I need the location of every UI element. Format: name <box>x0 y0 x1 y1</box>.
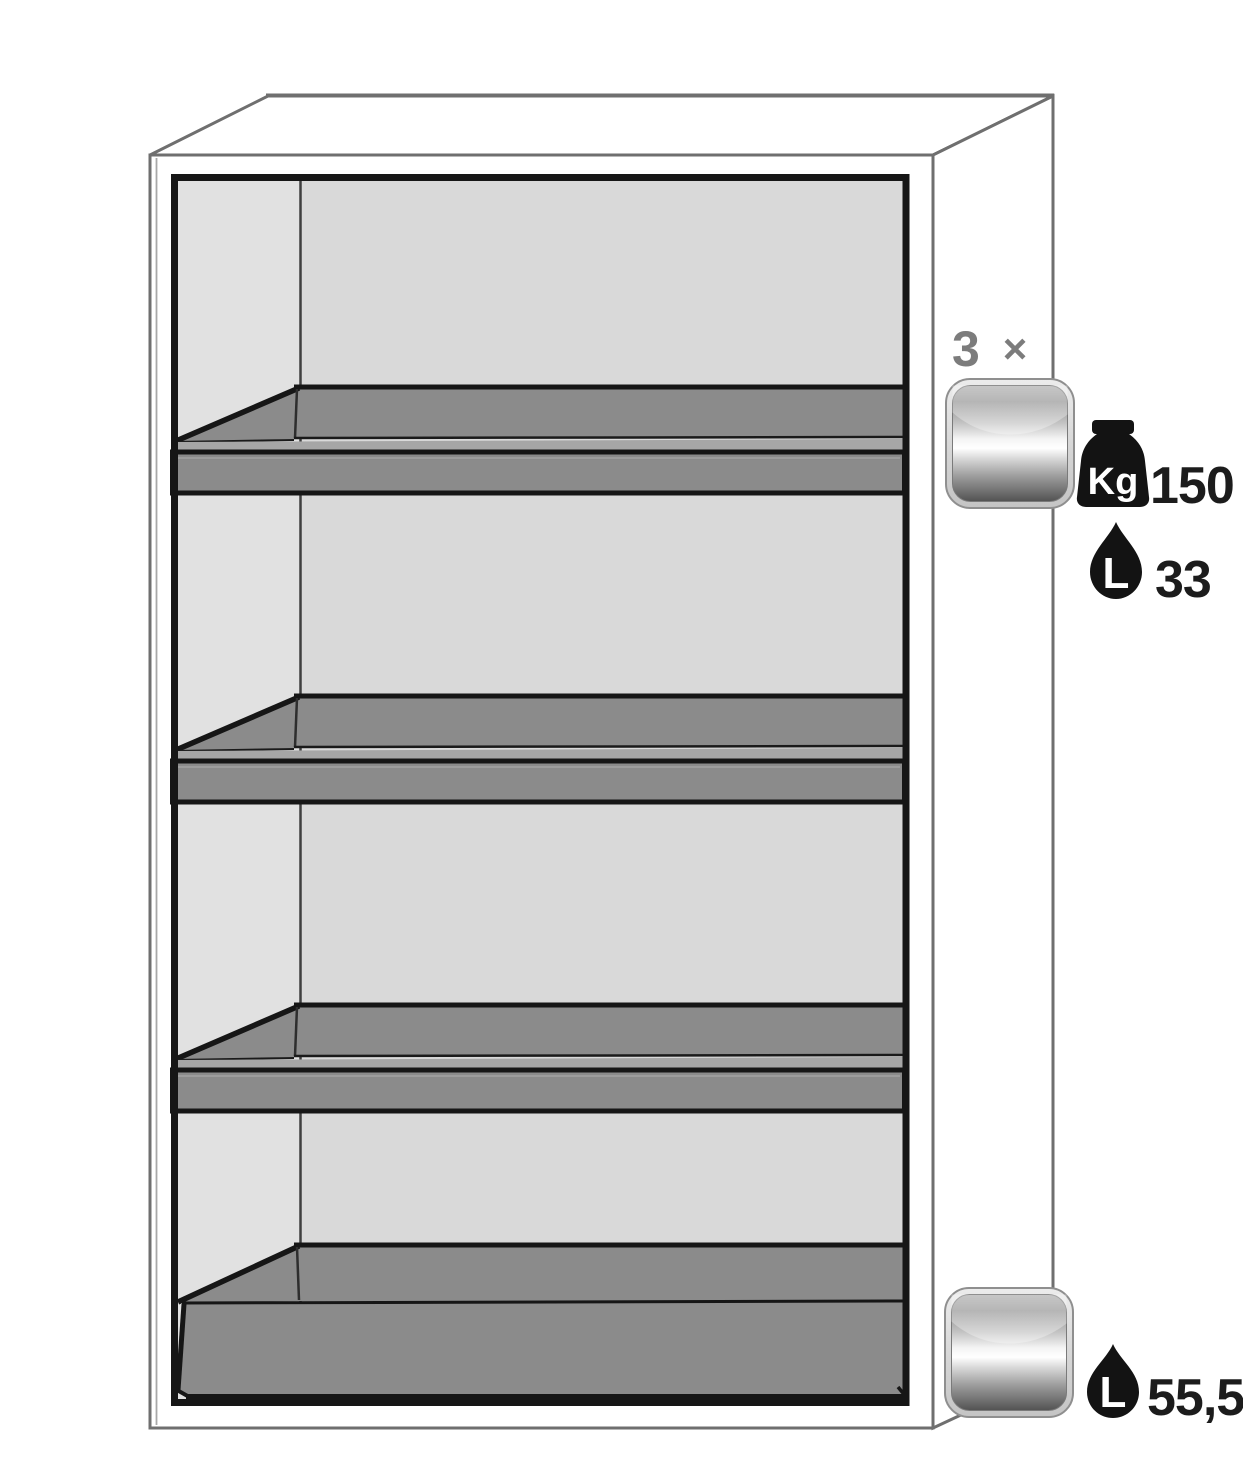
weight-handle <box>1092 420 1134 434</box>
shelf-count-number: 3 <box>952 321 981 377</box>
steel-shelf-icon <box>946 379 1074 508</box>
multiply-icon: × <box>1003 325 1029 372</box>
shelf-count-label: 3 × <box>952 321 1028 377</box>
sump-tray <box>177 1245 907 1398</box>
sump-volume-badge: L 55,5 <box>1087 1344 1243 1427</box>
shelf-load-value: 150 <box>1150 457 1234 515</box>
cabinet-right-panel <box>933 96 1053 1428</box>
shelf-volume-badge: L 33 <box>1090 522 1211 609</box>
kg-weight-icon: Kg <box>1077 420 1149 507</box>
sump-liter-drop-icon: L <box>1087 1344 1139 1418</box>
kg-unit-label: Kg <box>1088 461 1139 503</box>
liter-drop-icon: L <box>1090 522 1142 599</box>
cabinet-diagram: 3 × Kg 150 L 33 L 55,5 <box>0 0 1243 1468</box>
load-badge: Kg 150 <box>1077 420 1234 515</box>
sump-floor-front-edge <box>182 1301 903 1303</box>
shelf-volume-value: 33 <box>1155 551 1211 609</box>
sump-floor <box>181 1245 903 1303</box>
sump-volume-value: 55,5 <box>1147 1369 1243 1427</box>
sump-front-wall <box>179 1301 903 1397</box>
steel-sump-icon <box>945 1288 1073 1417</box>
liter-unit-label: L <box>1103 549 1130 598</box>
cabinet-top-face <box>150 96 1053 155</box>
sump-liter-unit-label: L <box>1100 1368 1127 1417</box>
